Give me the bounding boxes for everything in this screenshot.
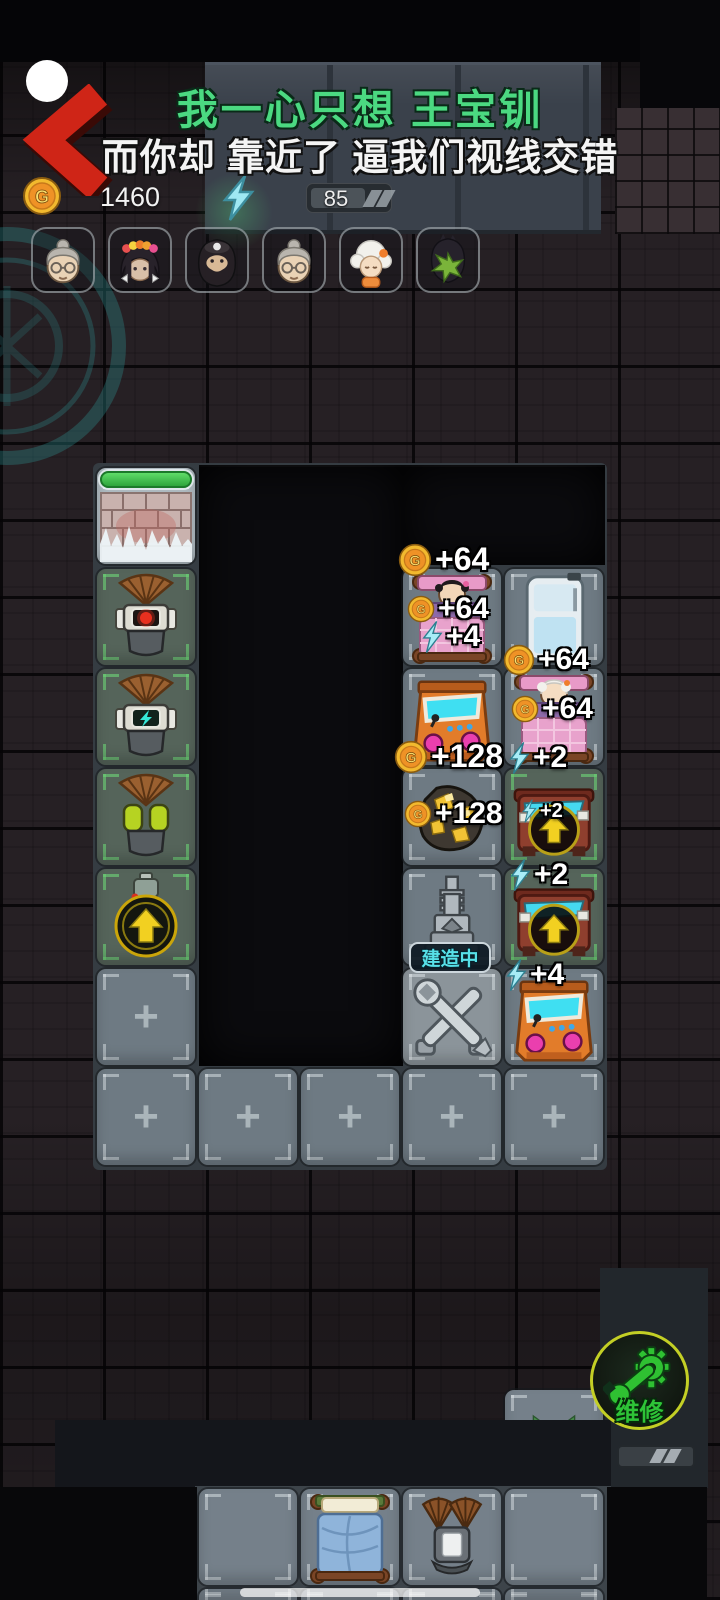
blue-bed-art xyxy=(304,1490,396,1584)
add-tile-icon: + xyxy=(301,1069,399,1165)
tile-generator-green[interactable] xyxy=(97,769,195,865)
under-construction-badge: 建造中 xyxy=(409,942,491,973)
tile-empty-3[interactable]: + xyxy=(199,1069,297,1165)
tile-room-floor-sliver xyxy=(505,1589,603,1600)
generator-green-art xyxy=(98,771,194,863)
grandma-avatar-icon xyxy=(35,233,91,291)
top-black-band xyxy=(0,0,720,62)
coin-g-icon: G xyxy=(503,644,535,676)
repair-label: 维修 xyxy=(593,1392,686,1427)
tile-brush-machine[interactable] xyxy=(403,1489,501,1585)
energy-bolt-icon xyxy=(505,958,527,992)
energy-gain-indicator: +4 xyxy=(421,620,480,654)
avatar-slot-white-hair-girl[interactable] xyxy=(339,227,403,293)
pit-area xyxy=(199,465,403,1066)
tile-room-floor-2[interactable] xyxy=(505,1489,603,1585)
tile-empty-1[interactable]: + xyxy=(97,969,195,1065)
add-tile-icon: + xyxy=(97,1069,195,1165)
energy-bolt-icon xyxy=(508,741,530,775)
tile-blue-bed[interactable] xyxy=(301,1489,399,1585)
brush-machine-art xyxy=(406,1491,498,1583)
tile-empty-5[interactable]: + xyxy=(403,1069,501,1165)
white-hair-girl-avatar-icon xyxy=(343,233,399,291)
leaf-masked-avatar-icon xyxy=(420,233,476,291)
tile-empty-2[interactable]: + xyxy=(97,1069,195,1165)
avatar-slot-bearded-man[interactable] xyxy=(185,227,249,293)
wrench-screwdriver-icon xyxy=(405,970,499,1064)
svg-text:G: G xyxy=(520,703,529,717)
tile-generator-electric[interactable] xyxy=(97,669,195,765)
tile-room-floor-1[interactable] xyxy=(199,1489,297,1585)
repair-button[interactable]: 维修 xyxy=(590,1331,689,1430)
energy-gain-indicator: +4 xyxy=(505,958,564,992)
energy-gain-indicator: +2 xyxy=(508,741,567,775)
back-button-dot[interactable] xyxy=(26,60,68,102)
back-icon[interactable] xyxy=(20,84,116,196)
coin-gain-indicator: G +128 xyxy=(394,738,503,775)
energy-value: 85 xyxy=(307,186,365,212)
tile-construction-site[interactable] xyxy=(403,969,501,1065)
coin-gain-indicator: G +64 xyxy=(503,643,589,677)
under-construction-label: 建造中 xyxy=(421,944,478,971)
generator-red-art xyxy=(98,571,194,663)
energy-meter: 85 xyxy=(306,183,392,213)
durability-meter xyxy=(617,1445,695,1468)
bottom-right-void xyxy=(607,1487,707,1600)
room-shadow-band xyxy=(55,1420,611,1488)
svg-text:G: G xyxy=(409,553,420,569)
tile-empty-6[interactable]: + xyxy=(505,1069,603,1165)
grandma-avatar-icon xyxy=(266,233,322,291)
avatar-slot-grandma-glasses[interactable] xyxy=(31,227,95,293)
tile-upgrading-canister[interactable] xyxy=(97,869,195,965)
energy-bolt-icon xyxy=(521,799,537,823)
energy-bolt-icon xyxy=(509,858,531,892)
flower-crown-girl-avatar-icon xyxy=(112,233,168,291)
add-tile-icon: + xyxy=(97,969,195,1065)
svg-text:G: G xyxy=(514,653,525,668)
coin-g-icon: G xyxy=(398,543,432,577)
coin-g-icon: G xyxy=(511,695,539,723)
avatar-slot-girl-flower-crown[interactable] xyxy=(108,227,172,293)
coin-g-icon: G xyxy=(404,800,432,828)
coin-gain-indicator: G +64 xyxy=(398,541,489,578)
generator-electric-art xyxy=(98,671,194,763)
coin-g-icon: G xyxy=(407,595,435,623)
avatar-slot-grandma-glasses-2[interactable] xyxy=(262,227,326,293)
avatar-slot-leaf-masked-person[interactable] xyxy=(416,227,480,293)
game-screen: + + + + + + xyxy=(0,0,720,1600)
tile-ice-wall[interactable] xyxy=(97,468,195,564)
svg-text:G: G xyxy=(416,603,425,617)
upgrade-canister-art xyxy=(98,869,194,965)
coin-g-icon: G xyxy=(394,740,428,774)
bearded-man-avatar-icon xyxy=(189,233,245,291)
energy-gain-indicator: +2 xyxy=(509,858,568,892)
svg-text:G: G xyxy=(405,750,416,766)
tile-empty-4[interactable]: + xyxy=(301,1069,399,1165)
coin-gain-indicator: G +128 xyxy=(404,797,503,831)
bottom-left-void xyxy=(0,1487,197,1600)
ice-wall-art xyxy=(100,492,192,562)
add-tile-icon: + xyxy=(199,1069,297,1165)
energy-bolt-icon xyxy=(421,620,443,654)
tile-generator-red[interactable] xyxy=(97,569,195,665)
add-tile-icon: + xyxy=(505,1069,603,1165)
bottom-progress-bar xyxy=(240,1588,480,1597)
add-tile-icon: + xyxy=(403,1069,501,1165)
energy-gain-indicator: +2 xyxy=(521,799,563,823)
energy-bolt-icon xyxy=(220,174,256,222)
coin-gain-indicator: G +64 xyxy=(511,692,593,726)
svg-text:G: G xyxy=(413,808,422,822)
